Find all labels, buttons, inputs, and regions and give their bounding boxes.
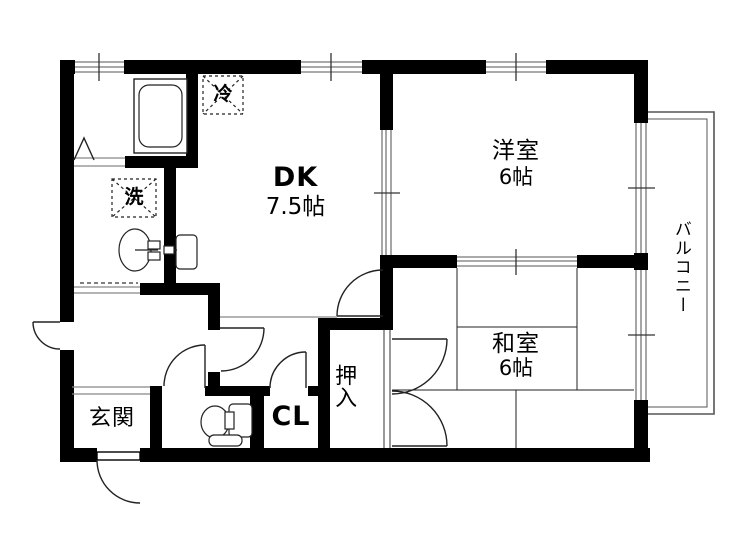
balcony-slider-western	[628, 123, 655, 253]
toilet	[201, 404, 252, 446]
entrance-door	[97, 452, 140, 503]
bathroom-folding-door	[74, 138, 94, 160]
japanese-room-label: 和室	[466, 332, 566, 356]
oshiire-doors	[392, 339, 447, 446]
washbasin	[119, 229, 160, 271]
closet-label: CL	[262, 403, 320, 431]
floor-plan-drawing	[0, 0, 750, 550]
slider-western-japanese	[457, 249, 577, 275]
corridor-door	[220, 328, 264, 371]
japanese-room-size: 6帖	[466, 357, 566, 379]
refrigerator-mark: 冷	[203, 76, 243, 114]
dk-door	[337, 270, 383, 316]
balcony-label: バルコニー	[671, 200, 689, 335]
floor-plan: DK 7.5帖 洋室 6帖 和室 6帖 玄関 CL 押入 バルコニー 冷 洗	[0, 0, 750, 550]
dk-room-size: 7.5帖	[238, 195, 353, 219]
washing-machine-mark: 洗	[112, 179, 156, 217]
dk-room-label: DK	[248, 164, 343, 192]
balcony-slider-japanese	[628, 270, 655, 400]
closet-door	[270, 352, 306, 388]
window-western-room	[485, 53, 547, 81]
oshiire-front-line	[384, 330, 390, 448]
toilet-door	[164, 345, 205, 388]
window-bathroom	[74, 53, 125, 81]
entrance-label: 玄関	[72, 407, 152, 430]
bathtub	[134, 79, 187, 153]
window-dk	[300, 53, 363, 81]
oshiire-label: 押入	[332, 340, 355, 432]
left-exterior-door	[33, 322, 60, 349]
western-room-label: 洋室	[466, 139, 566, 163]
slider-dk-western	[374, 130, 400, 255]
western-room-size: 6帖	[466, 166, 566, 188]
